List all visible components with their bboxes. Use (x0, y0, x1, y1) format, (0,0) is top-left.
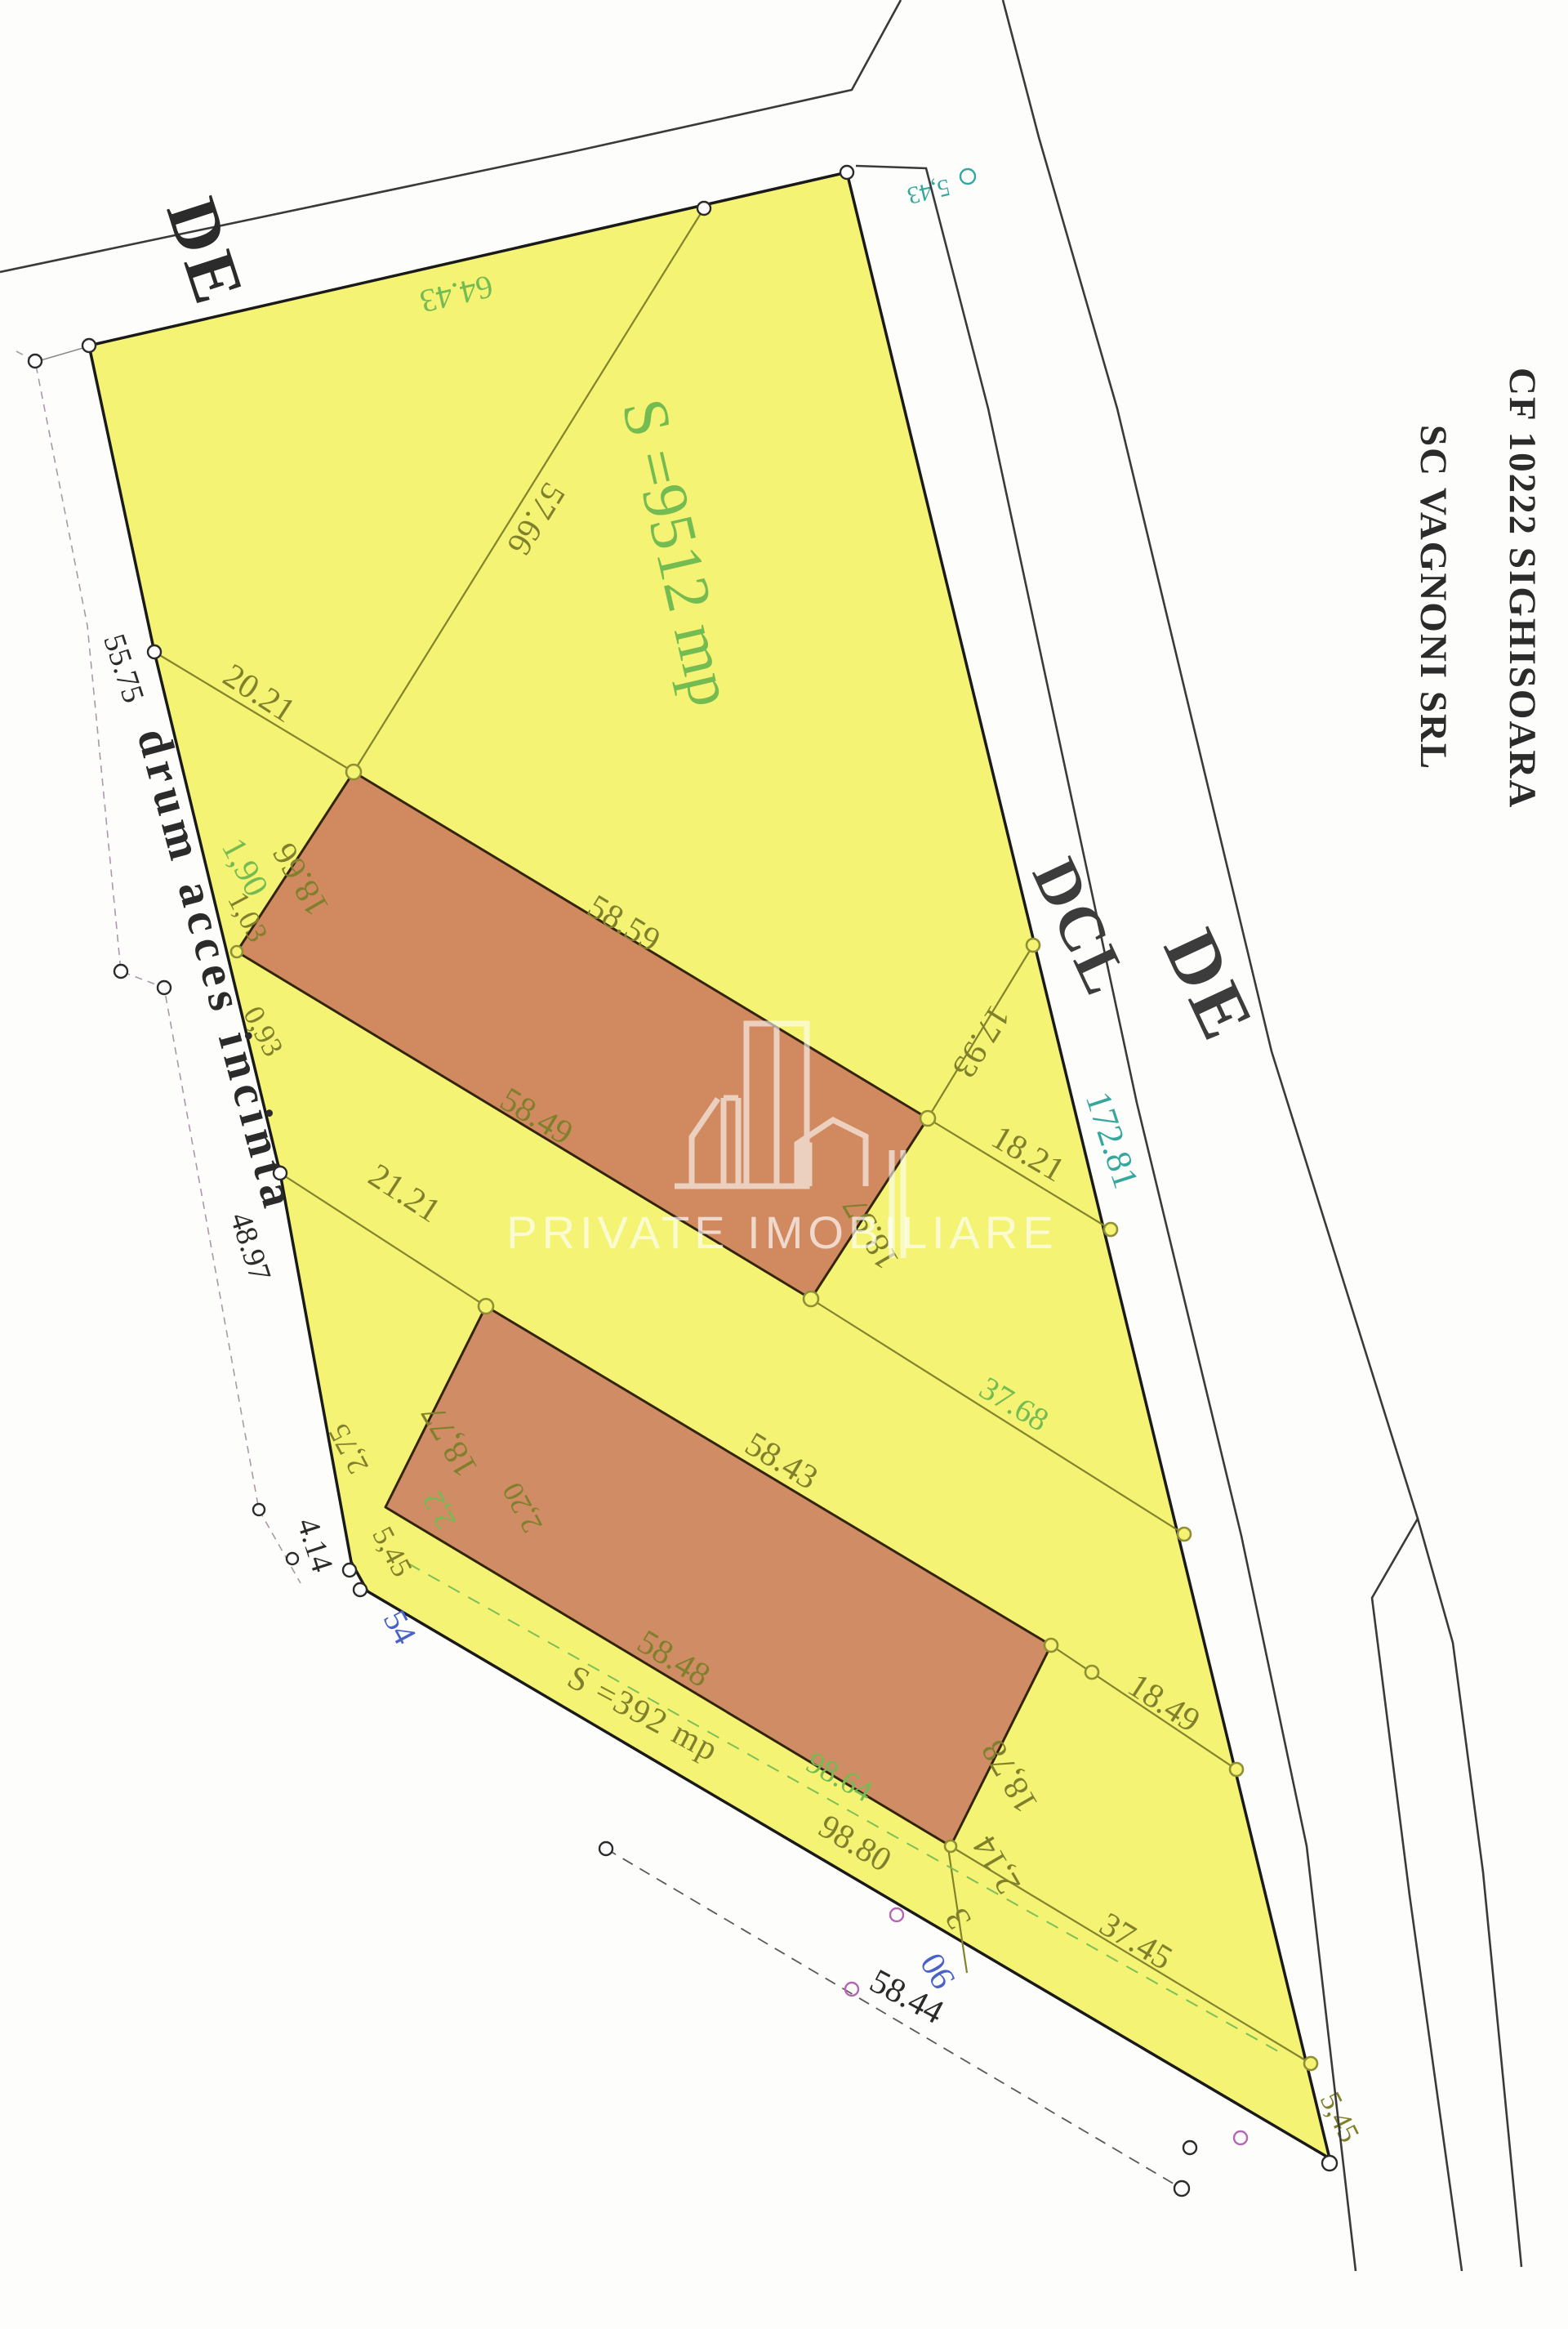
svg-text:PRIVATE IMOBILIARE: PRIVATE IMOBILIARE (506, 1207, 1058, 1258)
svg-text:SC VAGNONI SRL: SC VAGNONI SRL (1412, 425, 1454, 770)
svg-text:CF 10222 SIGHISOARA: CF 10222 SIGHISOARA (1501, 368, 1543, 809)
